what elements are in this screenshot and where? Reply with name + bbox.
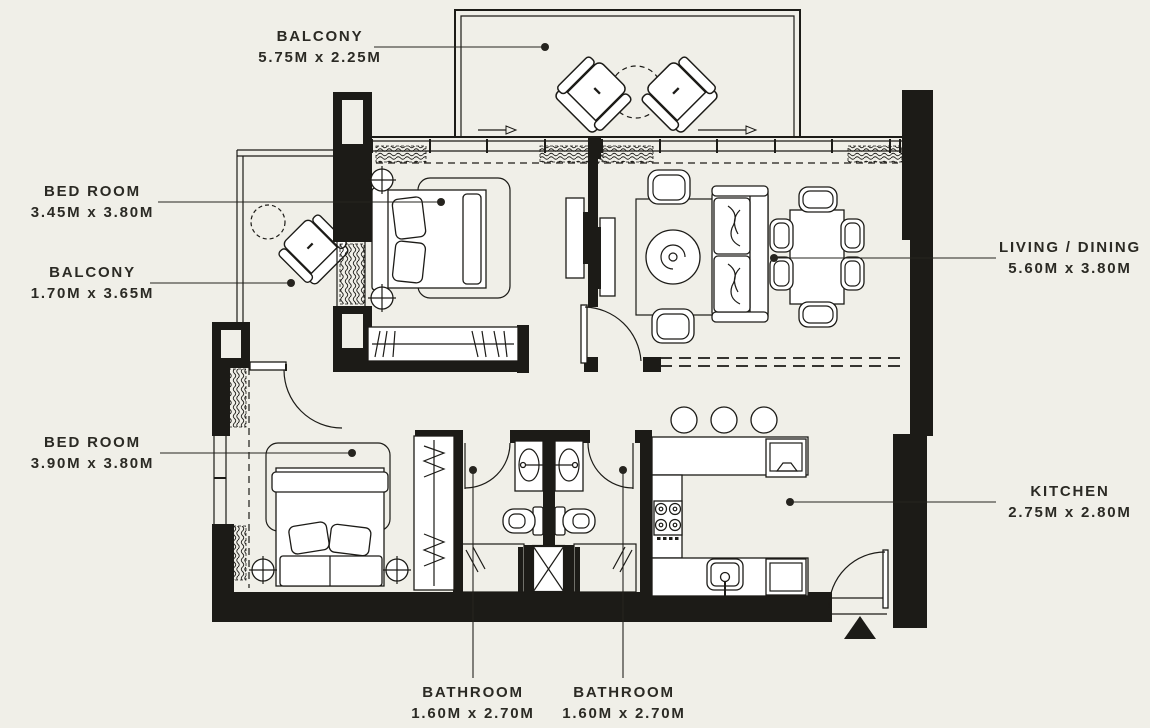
coffee-table [646, 230, 700, 284]
dining-set [770, 187, 864, 327]
label-bedroom-2: BED ROOM 3.90M x 3.80M [5, 432, 180, 474]
bar-stool [711, 407, 737, 433]
bed-foot-bench [463, 194, 481, 284]
bar-stool [751, 407, 777, 433]
label-balcony-top: BALCONY 5.75M x 2.25M [225, 26, 415, 68]
living-door [581, 305, 641, 363]
tv [583, 212, 588, 264]
bedside-lamp [249, 556, 277, 584]
label-bathroom-1: BATHROOM 1.60M x 2.70M [385, 682, 561, 724]
bathroom1-door [465, 443, 510, 489]
label-kitchen: KITCHEN 2.75M x 2.80M [985, 481, 1150, 523]
room-dims: 5.60M x 3.80M [985, 258, 1150, 279]
balcony-chair [638, 53, 722, 137]
shower [574, 544, 636, 592]
room-dims: 1.60M x 2.70M [385, 703, 561, 724]
label-living-dining: LIVING / DINING 5.60M x 3.80M [985, 237, 1150, 279]
room-dims: 2.75M x 2.80M [985, 502, 1150, 523]
bathroom2-door [588, 443, 633, 489]
service-shaft [533, 546, 564, 592]
dishwasher [766, 559, 806, 595]
room-dims: 3.90M x 3.80M [5, 453, 180, 474]
sofa [712, 186, 768, 322]
stove [654, 501, 682, 540]
fridge [766, 439, 806, 477]
tv [597, 227, 601, 289]
pillow [392, 241, 426, 284]
vanity-sink [555, 441, 583, 491]
top-balcony [455, 10, 800, 137]
room-dims: 1.60M x 2.70M [536, 703, 712, 724]
bed-foot-bench [272, 472, 388, 492]
pillow [392, 196, 427, 239]
toilet [555, 507, 595, 535]
room-name: KITCHEN [985, 481, 1150, 502]
label-bedroom-1: BED ROOM 3.45M x 3.80M [5, 181, 180, 223]
dining-chair [770, 219, 793, 252]
pillow [288, 521, 330, 555]
room-dims: 1.70M x 3.65M [5, 283, 180, 304]
bedroom1-furniture [368, 166, 588, 361]
room-name: BATHROOM [536, 682, 712, 703]
room-dims: 5.75M x 2.25M [225, 47, 415, 68]
armchair [648, 170, 690, 204]
tv-console [566, 198, 584, 278]
dining-chair [799, 187, 837, 212]
entrance-marker-icon [844, 616, 876, 639]
pillow [328, 524, 371, 557]
shower [462, 544, 524, 592]
label-balcony-left: BALCONY 1.70M x 3.65M [5, 262, 180, 304]
drain-arrow-icon [506, 126, 516, 134]
living-furniture [597, 170, 864, 343]
sink [707, 559, 743, 596]
drain-arrow-icon [746, 126, 756, 134]
wardrobe [414, 436, 454, 590]
dining-chair [799, 302, 837, 327]
room-name: BED ROOM [5, 432, 180, 453]
armchair [652, 309, 694, 343]
floor-plan-canvas [0, 0, 1150, 728]
vanity-sink [515, 441, 543, 491]
bedroom2-door [284, 364, 342, 428]
bed-headboard [372, 188, 388, 290]
toilet [503, 507, 543, 535]
dining-chair [841, 257, 864, 290]
room-name: BALCONY [225, 26, 415, 47]
bedside-lamp [383, 556, 411, 584]
bedroom2-furniture [249, 436, 454, 590]
media-console [600, 218, 615, 296]
label-bathroom-2: BATHROOM 1.60M x 2.70M [536, 682, 712, 724]
room-dims: 3.45M x 3.80M [5, 202, 180, 223]
dining-chair [841, 219, 864, 252]
floor-plan: BALCONY 5.75M x 2.25M BED ROOM 3.45M x 3… [0, 0, 1150, 728]
kitchen-fixtures [652, 407, 808, 596]
room-name: LIVING / DINING [985, 237, 1150, 258]
dining-table [790, 210, 844, 304]
blanket [280, 556, 382, 586]
balcony-chair [551, 53, 635, 137]
room-name: BALCONY [5, 262, 180, 283]
balcony-table [251, 205, 285, 239]
closet [368, 327, 518, 361]
room-name: BATHROOM [385, 682, 561, 703]
bar-stool [671, 407, 697, 433]
room-name: BED ROOM [5, 181, 180, 202]
entry-door [829, 550, 888, 608]
